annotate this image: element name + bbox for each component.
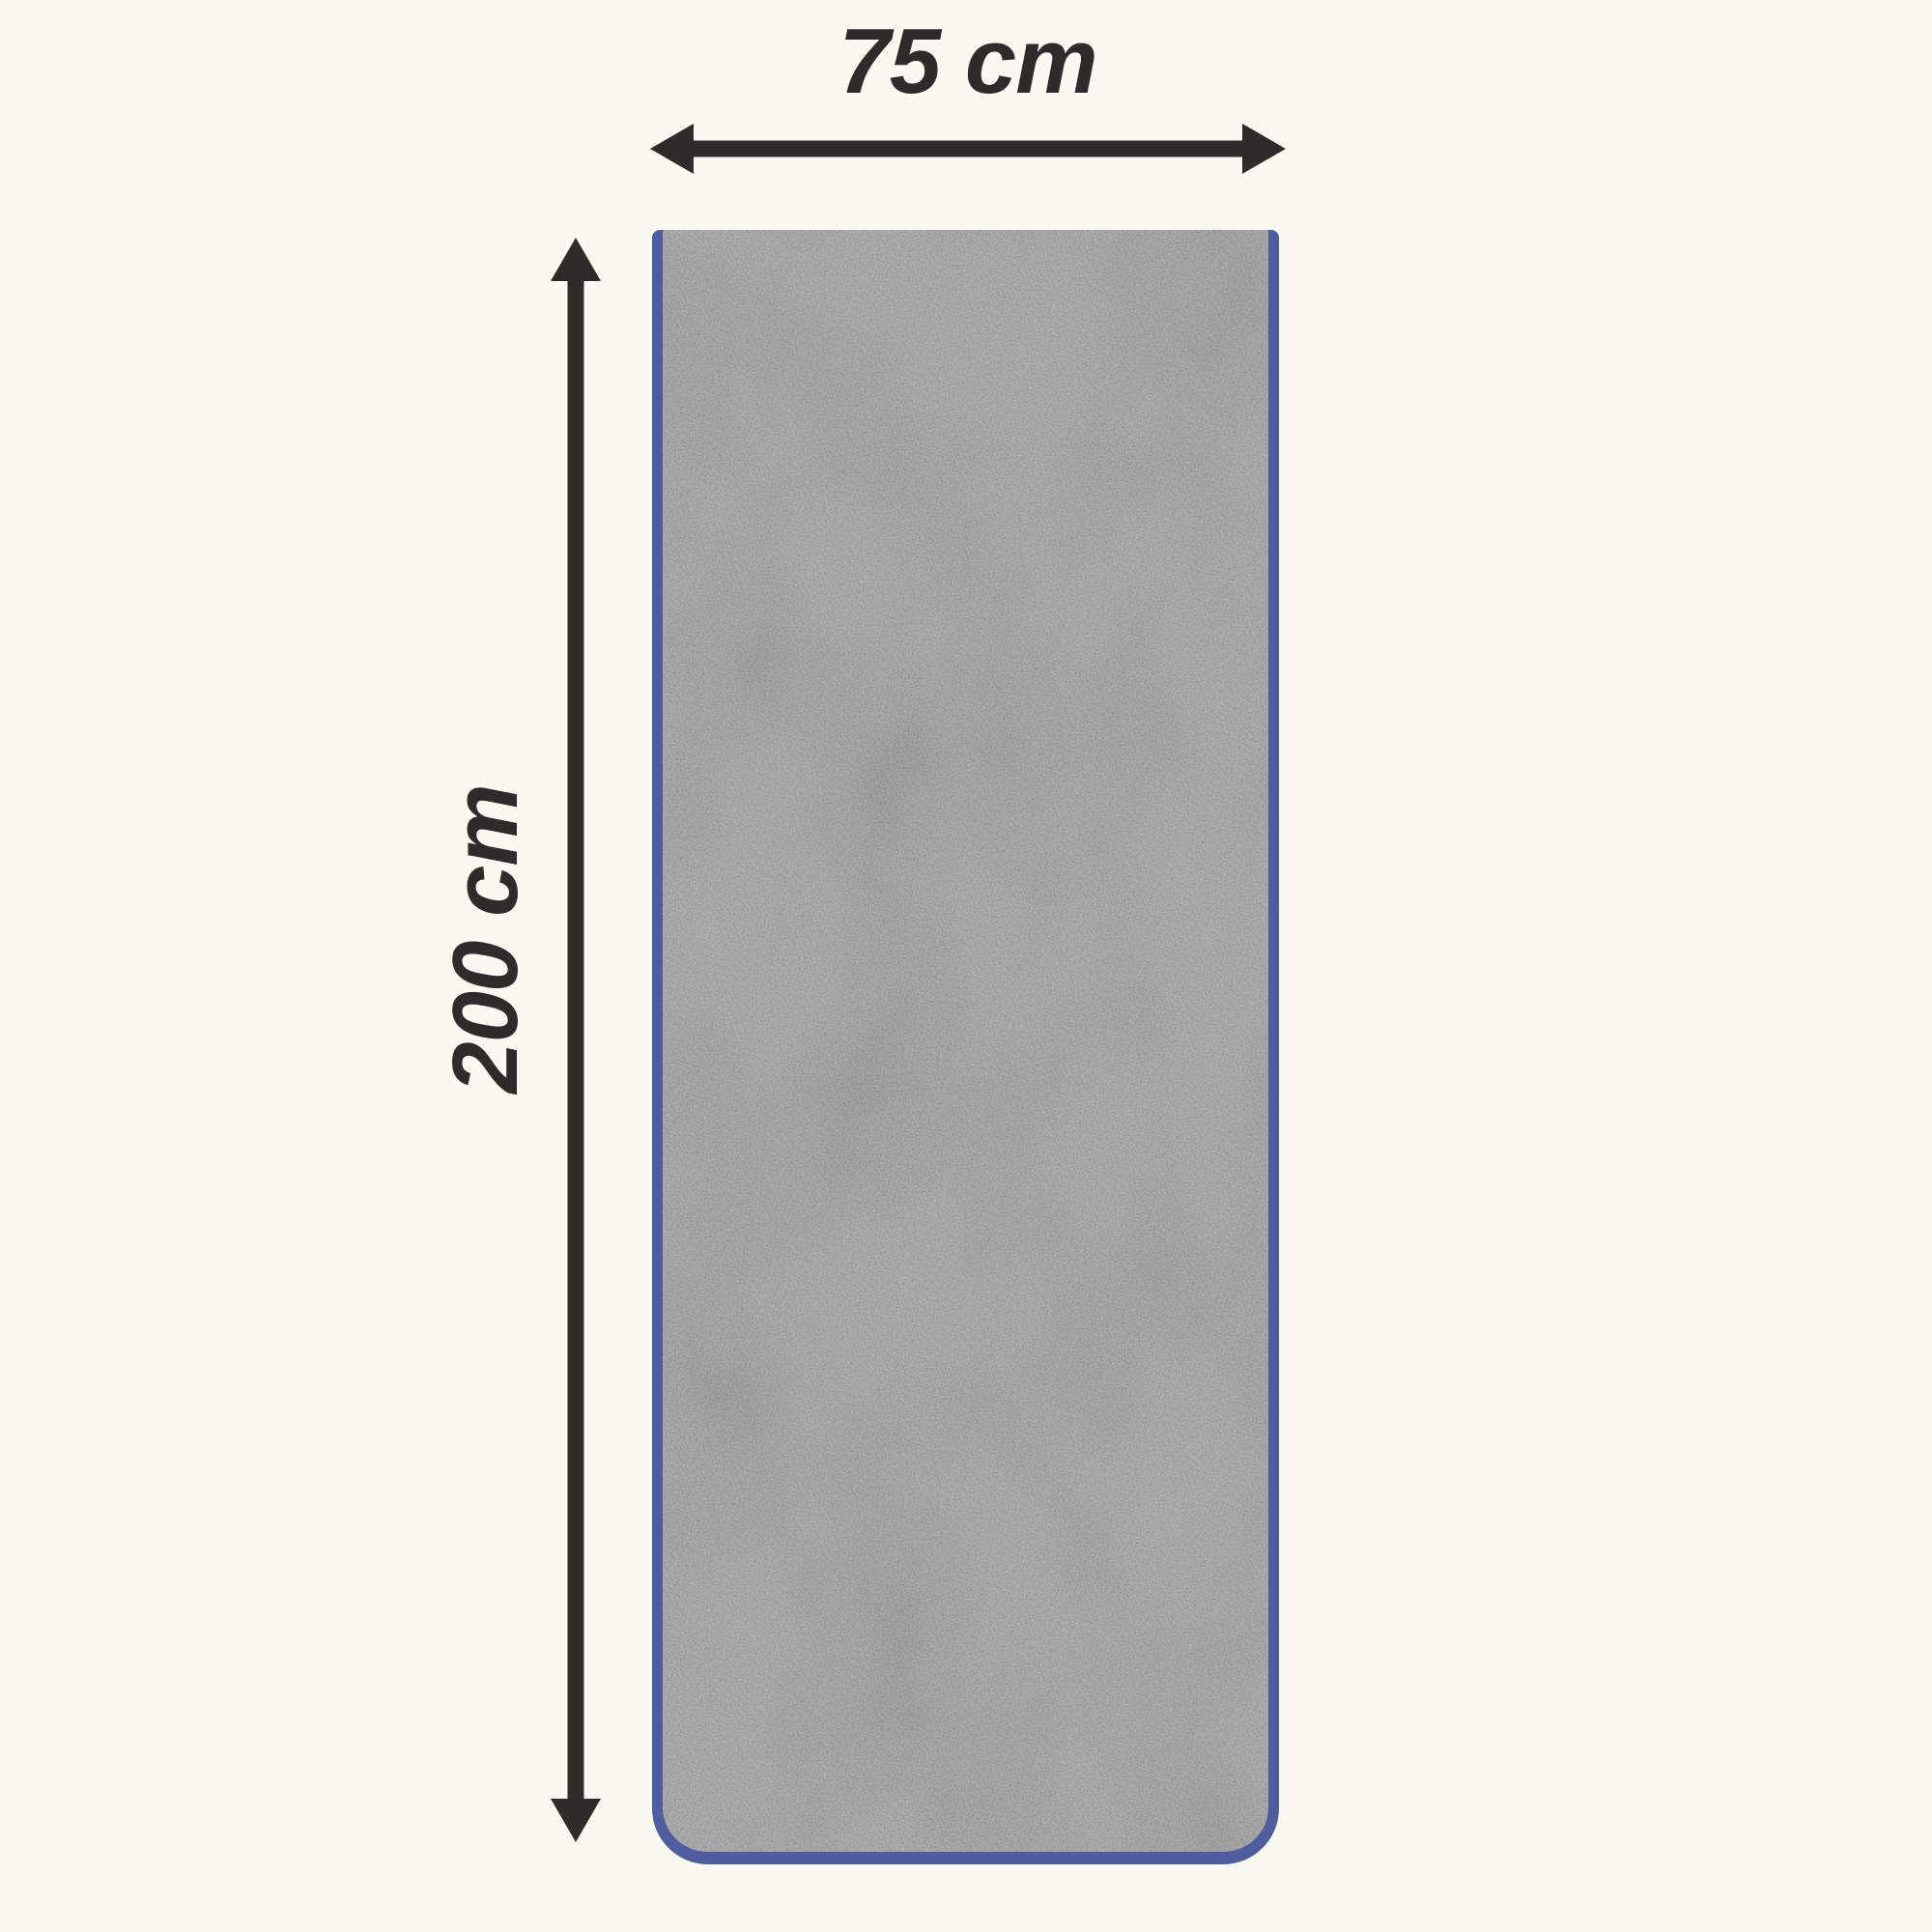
height-dimension-label: 200 cm <box>433 746 539 1132</box>
height-arrow-icon <box>549 237 603 1843</box>
towel-image <box>652 230 1279 1864</box>
width-arrow-icon <box>649 122 1287 176</box>
towel-fabric-texture <box>663 230 1268 1852</box>
width-dimension-label: 75 cm <box>649 8 1287 116</box>
product-dimension-diagram: 75 cm <box>0 0 1932 1932</box>
